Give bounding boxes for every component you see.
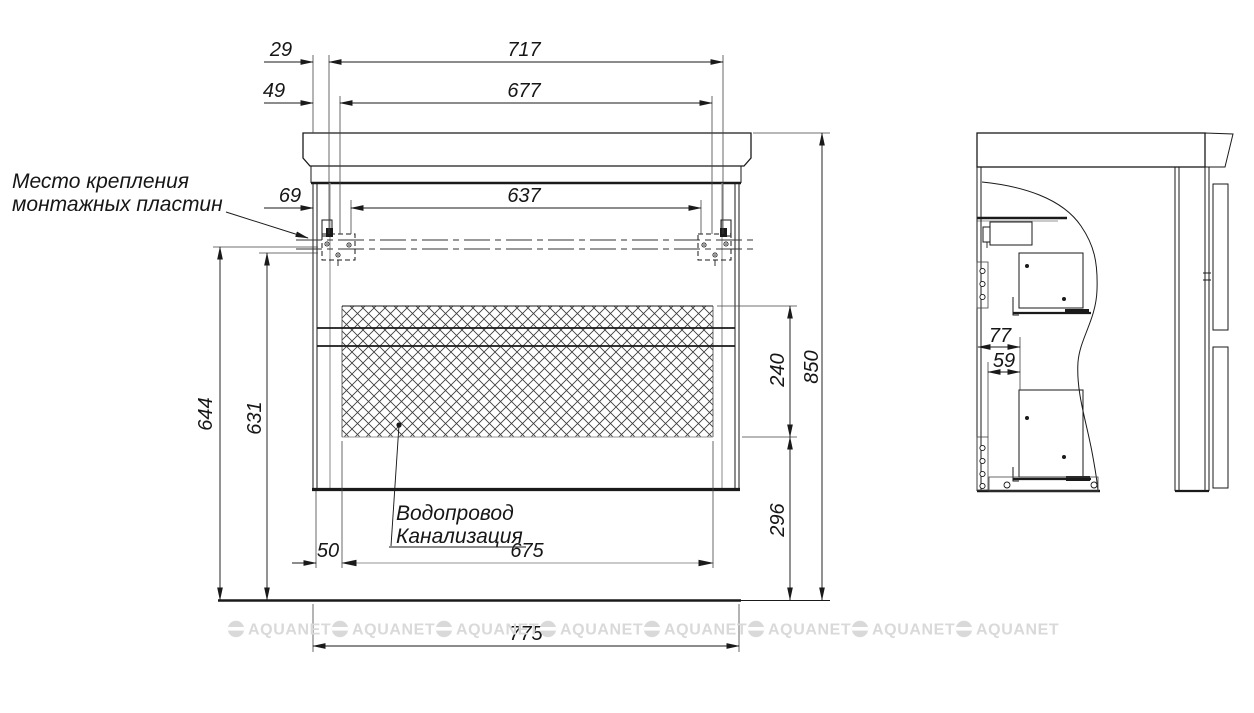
aquanet-logo-slit — [540, 627, 556, 631]
watermark: AQUANET — [436, 621, 540, 639]
mounting-note: Место крепления монтажных пластин — [12, 170, 308, 238]
dim-69: 69 — [264, 185, 313, 208]
dim-644-label: 644 — [195, 397, 217, 430]
plumbing-note-line2: Канализация — [396, 525, 523, 548]
watermark-text: AQUANET — [456, 622, 539, 639]
dim-50: 50 — [292, 540, 339, 563]
dim-850-label: 850 — [801, 350, 823, 383]
mounting-centerlines — [296, 240, 754, 249]
dim-631: 631 — [244, 253, 267, 600]
mounting-plate-right — [698, 220, 731, 266]
plumbing-note: Водопровод Канализация — [389, 422, 526, 548]
aquanet-logo-slit — [748, 627, 764, 631]
side-drawer-box-lower — [1013, 390, 1091, 481]
dim-637-label: 637 — [507, 185, 541, 207]
watermark: AQUANET — [228, 621, 332, 639]
side-view — [977, 133, 1233, 491]
aquanet-logo-slit — [228, 627, 244, 631]
dim-49: 49 — [263, 80, 313, 103]
watermark-text: AQUANET — [768, 622, 851, 639]
watermark-text: AQUANET — [352, 622, 435, 639]
watermark: AQUANET — [332, 621, 436, 639]
watermark-text: AQUANET — [976, 622, 1059, 639]
drawing-page: 29 717 49 677 69 637 50 675 — [0, 0, 1254, 713]
watermark-text: AQUANET — [664, 622, 747, 639]
dim-59: 59 — [988, 350, 1020, 372]
watermark: AQUANET — [540, 621, 644, 639]
mounting-plate-left — [322, 220, 355, 266]
dim-77-label: 77 — [989, 325, 1012, 347]
side-front-panels — [1175, 167, 1228, 491]
dim-29: 29 — [264, 39, 313, 62]
watermark-text: AQUANET — [560, 622, 643, 639]
dim-717-label: 717 — [507, 39, 541, 61]
dim-644: 644 — [195, 247, 220, 600]
dim-677-label: 677 — [507, 80, 541, 102]
dim-69-label: 69 — [279, 185, 301, 207]
mounting-note-leader — [226, 212, 308, 238]
watermark: AQUANET — [644, 621, 748, 639]
watermark-text: AQUANET — [872, 622, 955, 639]
front-top-band — [311, 166, 741, 183]
watermark-text: AQUANET — [248, 622, 331, 639]
dim-631-label: 631 — [244, 401, 266, 434]
dim-59-label: 59 — [993, 350, 1015, 372]
dim-77: 77 — [978, 325, 1020, 347]
side-wall-strips — [977, 262, 988, 490]
dim-717: 717 — [329, 39, 723, 62]
dim-296: 296 — [767, 437, 790, 600]
watermark-row: AQUANETAQUANETAQUANETAQUANETAQUANETAQUAN… — [228, 621, 1060, 639]
plumbing-leader-dot — [396, 422, 401, 427]
dim-29-label: 29 — [269, 39, 292, 61]
watermark: AQUANET — [748, 621, 852, 639]
side-mounting-plate — [983, 222, 1032, 248]
dim-850: 850 — [801, 133, 823, 600]
aquanet-logo-slit — [956, 627, 972, 631]
dim-49-label: 49 — [263, 80, 285, 102]
dim-677: 677 — [340, 80, 712, 103]
vanity-technical-drawing: 29 717 49 677 69 637 50 675 — [0, 0, 1254, 713]
aquanet-logo-slit — [332, 627, 348, 631]
utility-hatch-area — [342, 306, 713, 437]
dim-240-label: 240 — [767, 353, 789, 387]
mounting-note-line2: монтажных пластин — [12, 193, 223, 216]
side-drawer-box-upper — [1013, 253, 1091, 315]
aquanet-logo-slit — [852, 627, 868, 631]
dim-296-label: 296 — [767, 502, 789, 537]
watermark: AQUANET — [956, 621, 1060, 639]
side-countertop — [977, 133, 1233, 167]
watermark: AQUANET — [852, 621, 956, 639]
aquanet-logo-slit — [644, 627, 660, 631]
plumbing-note-line1: Водопровод — [396, 502, 514, 525]
aquanet-logo-slit — [436, 627, 452, 631]
dim-637: 637 — [351, 185, 701, 208]
mounting-note-line1: Место крепления — [12, 170, 189, 193]
dim-240: 240 — [767, 306, 790, 437]
dim-50-label: 50 — [317, 540, 339, 562]
front-countertop — [303, 133, 751, 166]
